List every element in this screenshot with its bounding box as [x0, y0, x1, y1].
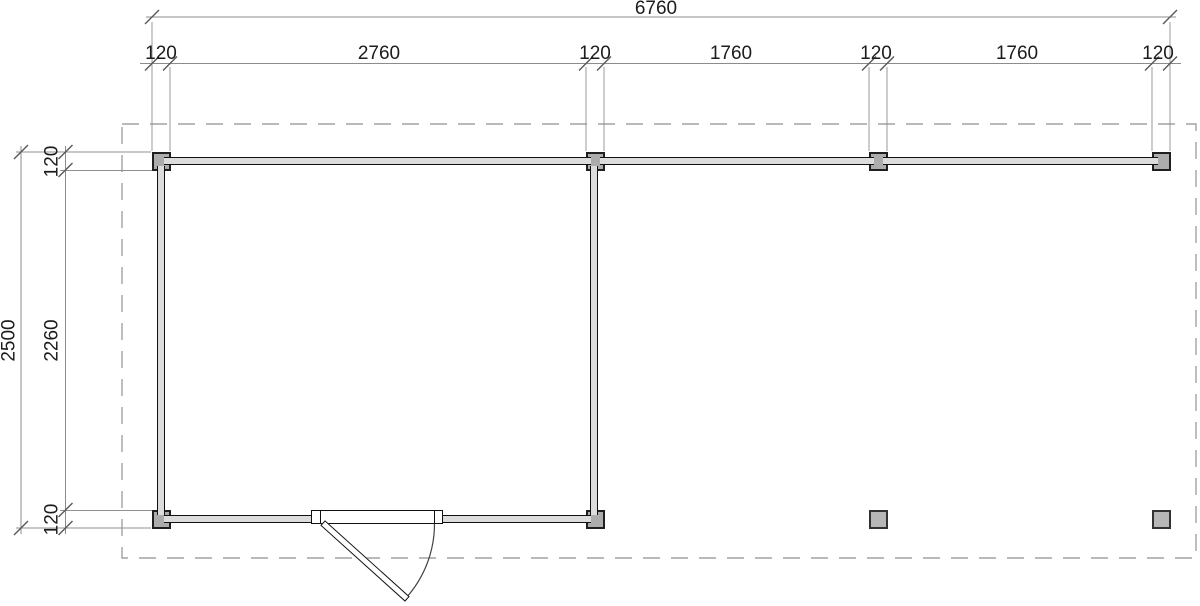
post-terrace-left	[869, 510, 888, 529]
post-terrace-right	[1152, 510, 1171, 529]
dim-label-overall-width: 6760	[621, 0, 691, 17]
dimension-lines	[21, 17, 1181, 534]
door-strike-jamb	[434, 511, 435, 523]
wall-back-left	[164, 157, 591, 165]
wall-back-right	[883, 157, 1158, 165]
wall-front-right	[442, 515, 591, 523]
dim-label-top-seg-7: 120	[1123, 45, 1193, 62]
wall-left-side	[157, 166, 165, 515]
wall-front-left	[164, 515, 312, 523]
dim-label-top-seg-5: 120	[841, 45, 911, 62]
overhang-outline	[122, 124, 1196, 558]
dim-label-top-seg-4: 1760	[696, 45, 766, 62]
dim-label-top-seg-6: 1760	[982, 45, 1052, 62]
door-hinge-jamb	[320, 511, 321, 523]
dim-label-left-seg-1: 120	[44, 127, 61, 197]
dim-label-left-seg-3: 120	[44, 485, 61, 555]
dim-label-left-seg-2: 2260	[44, 306, 61, 376]
dim-label-top-seg-1: 120	[126, 45, 196, 62]
door-opening	[311, 510, 443, 524]
wall-back-middle	[600, 157, 874, 165]
door-swing-arc	[406, 524, 435, 599]
wall-partition	[590, 166, 598, 515]
dim-label-overall-depth: 2500	[1, 306, 18, 376]
dim-label-top-seg-2: 2760	[344, 45, 414, 62]
floor-plan-canvas: 6760 120 2760 120 1760 120 1760 120 2500…	[0, 0, 1200, 606]
dim-label-top-seg-3: 120	[560, 45, 630, 62]
